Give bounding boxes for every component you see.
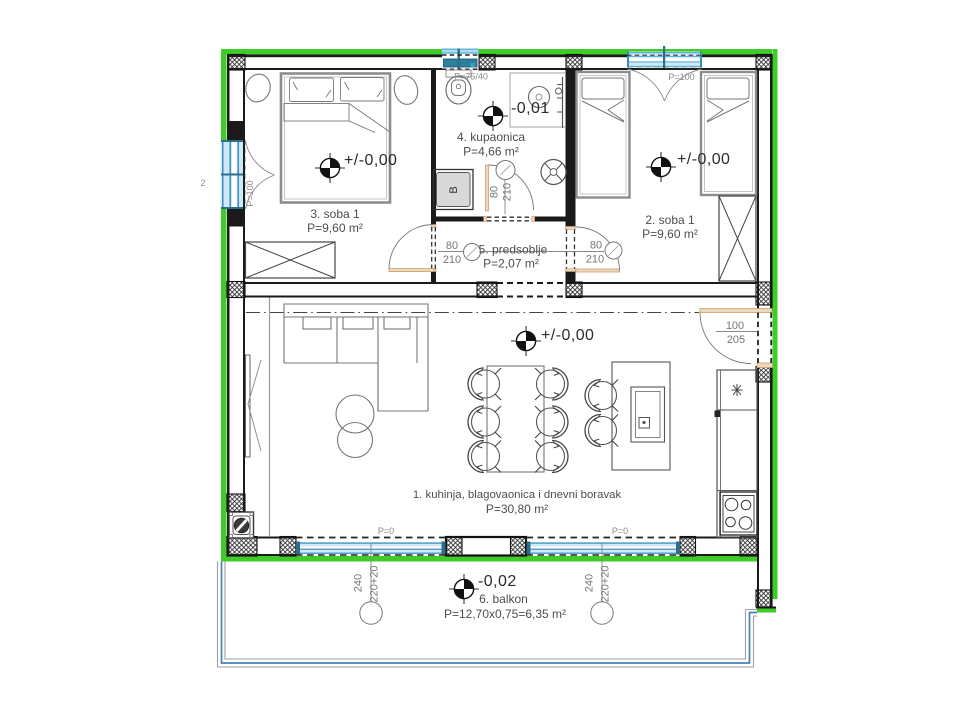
svg-text:210: 210 bbox=[586, 254, 604, 266]
svg-text:100: 100 bbox=[726, 320, 744, 332]
svg-text:P=100: P=100 bbox=[245, 180, 255, 206]
svg-text:-0,01: -0,01 bbox=[511, 100, 550, 117]
svg-text:P=9,60 m²: P=9,60 m² bbox=[307, 221, 363, 235]
svg-text:+/-0,00: +/-0,00 bbox=[541, 327, 594, 344]
svg-text:80: 80 bbox=[590, 240, 602, 252]
svg-text:80: 80 bbox=[446, 240, 458, 252]
svg-text:P=0: P=0 bbox=[612, 526, 628, 536]
svg-text:P=12,70x0,75=6,35 m²: P=12,70x0,75=6,35 m² bbox=[444, 607, 566, 621]
svg-text:P=9,60 m²: P=9,60 m² bbox=[642, 227, 698, 241]
svg-text:5. predsoblje: 5. predsoblje bbox=[479, 243, 548, 257]
svg-text:P=30,80 m²: P=30,80 m² bbox=[486, 502, 548, 516]
svg-text:3. soba 1: 3. soba 1 bbox=[310, 207, 360, 221]
svg-text:6. balkon: 6. balkon bbox=[479, 592, 528, 606]
svg-text:220+20: 220+20 bbox=[369, 565, 381, 602]
svg-text:210: 210 bbox=[443, 254, 461, 266]
svg-text:+/-0,00: +/-0,00 bbox=[677, 151, 730, 168]
svg-text:P=2,07 m²: P=2,07 m² bbox=[483, 257, 539, 271]
svg-text:1. kuhinja, blagovaonica i dne: 1. kuhinja, blagovaonica i dnevni borava… bbox=[413, 489, 622, 501]
svg-text:B: B bbox=[448, 186, 460, 193]
svg-text:+/-0,00: +/-0,00 bbox=[344, 152, 397, 169]
svg-text:220+20: 220+20 bbox=[600, 565, 612, 602]
svg-text:2: 2 bbox=[200, 178, 205, 188]
svg-text:2. soba 1: 2. soba 1 bbox=[645, 213, 695, 227]
svg-text:P=75/40: P=75/40 bbox=[454, 72, 488, 82]
svg-text:P=0: P=0 bbox=[378, 526, 394, 536]
svg-text:-0,02: -0,02 bbox=[478, 573, 517, 590]
svg-text:80: 80 bbox=[489, 186, 501, 198]
svg-text:240: 240 bbox=[584, 574, 596, 592]
svg-text:P=100: P=100 bbox=[668, 72, 694, 82]
svg-text:P=4,66 m²: P=4,66 m² bbox=[463, 145, 519, 159]
svg-text:240: 240 bbox=[353, 574, 365, 592]
svg-text:210: 210 bbox=[502, 183, 514, 201]
svg-text:4. kupaonica: 4. kupaonica bbox=[457, 130, 525, 144]
svg-text:205: 205 bbox=[727, 334, 745, 346]
